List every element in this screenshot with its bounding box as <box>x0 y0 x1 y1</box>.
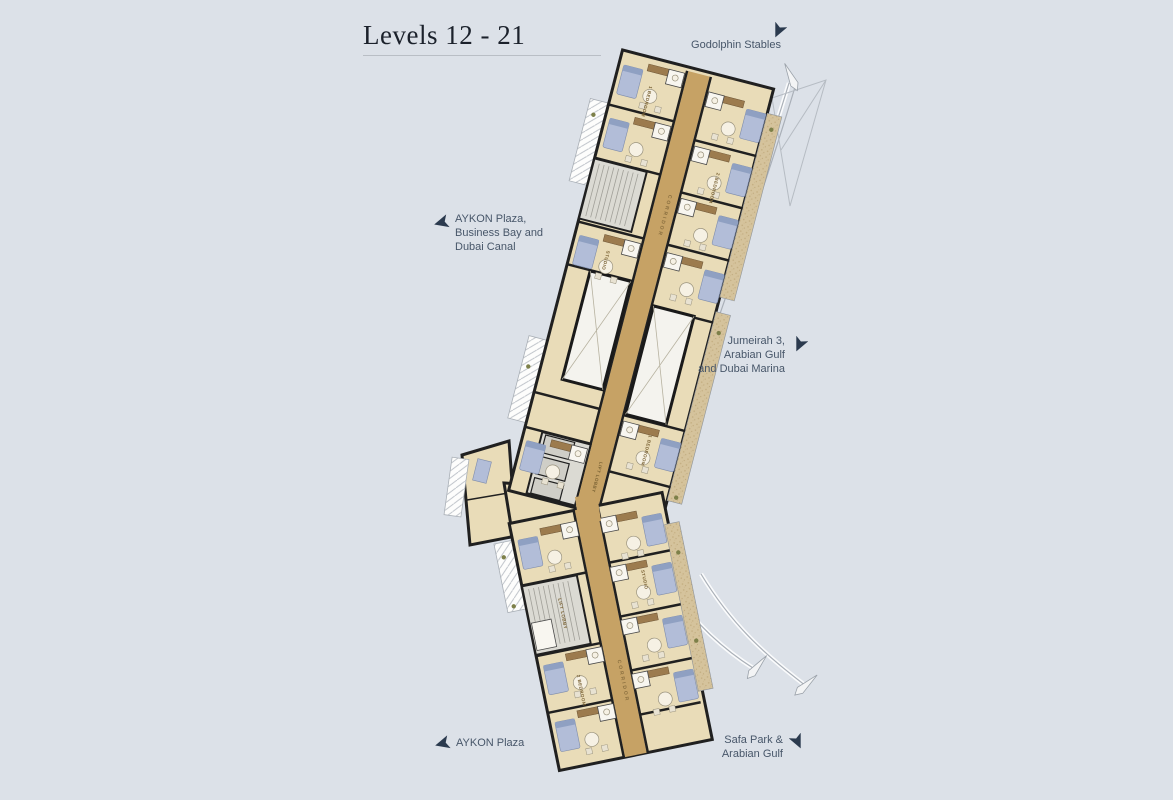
direction-label-godolphin: Godolphin Stables <box>678 38 794 52</box>
page: CORRIDOR LIFT LOBBY 1 BEDROOM 2 BEDROOM … <box>0 0 1173 800</box>
scaffold-lines <box>772 80 826 206</box>
direction-text: Arabian Gulf <box>665 747 783 761</box>
direction-label-aykon-plaza-canal: AYKON Plaza, Business Bay and Dubai Cana… <box>455 212 580 254</box>
direction-text: Jumeirah 3, <box>663 334 785 348</box>
direction-text: Safa Park & <box>665 733 783 747</box>
direction-arrow-icon <box>433 214 450 231</box>
direction-text: and Dubai Marina <box>663 362 785 376</box>
page-title: Levels 12 - 21 <box>363 20 601 51</box>
floor-plan: CORRIDOR LIFT LOBBY 1 BEDROOM 2 BEDROOM … <box>0 0 1173 800</box>
direction-arrow-icon <box>791 336 808 353</box>
title-underline <box>363 55 601 56</box>
direction-arrow-icon <box>434 735 451 752</box>
direction-text: Arabian Gulf <box>663 348 785 362</box>
direction-text: AYKON Plaza, <box>455 212 580 226</box>
direction-arrow-icon <box>789 733 806 750</box>
lower-wing: CORRIDOR LIFT LOBBY 2 BEDROOM STUDIO <box>491 490 724 774</box>
direction-label-safa-park: Safa Park & Arabian Gulf <box>665 733 783 761</box>
direction-text: Dubai Canal <box>455 240 580 254</box>
upper-wing: CORRIDOR LIFT LOBBY 1 BEDROOM 2 BEDROOM … <box>490 45 788 533</box>
direction-text: AYKON Plaza <box>456 736 566 750</box>
direction-text: Godolphin Stables <box>678 38 794 52</box>
direction-text: Business Bay and <box>455 226 580 240</box>
direction-arrow-icon <box>770 22 787 39</box>
corridor-bend-patch <box>575 494 601 524</box>
direction-label-aykon-plaza: AYKON Plaza <box>456 736 566 750</box>
facade-fin <box>781 62 801 93</box>
direction-label-jumeirah: Jumeirah 3, Arabian Gulf and Dubai Marin… <box>663 334 785 376</box>
title-block: Levels 12 - 21 <box>363 20 601 56</box>
